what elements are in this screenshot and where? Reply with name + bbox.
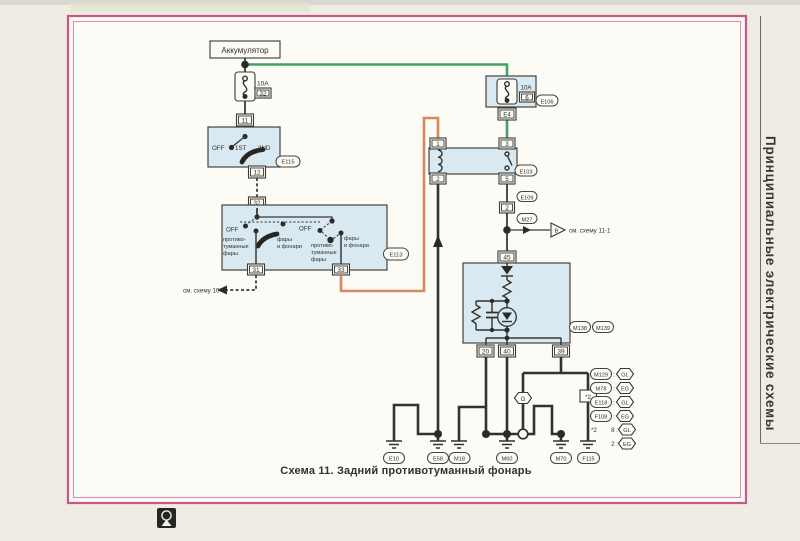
connector-11: 11 (237, 114, 254, 126)
switch-pos-1st: 1ST (235, 145, 247, 152)
junction-dot (434, 430, 442, 438)
svg-text::: : (613, 399, 615, 406)
svg-text:фары: фары (311, 257, 326, 263)
diagram-caption: Схема 11. Задний противотуманный фонарь (280, 465, 531, 477)
svg-text:20: 20 (482, 349, 490, 356)
junction-dot (557, 430, 565, 438)
svg-text:M129: M129 (594, 372, 608, 378)
svg-text:GL: GL (621, 372, 628, 378)
ground-id: E10 (389, 456, 399, 462)
connector-20: 20 (477, 345, 494, 357)
svg-text:GL: GL (621, 400, 628, 406)
relay-pin-3: 3 (499, 138, 515, 149)
svg-text:противо-: противо- (311, 243, 334, 249)
svg-text:E4: E4 (503, 112, 511, 119)
fuse-10a-6: 10A 6 (486, 76, 536, 107)
svg-text::: : (613, 413, 615, 420)
light-switch-e115: OFF 1ST 2ND (208, 127, 280, 167)
scanned-manual-page: Принципиальные электрические схемы Аккум… (0, 0, 800, 541)
connector-40: 40 (499, 345, 516, 357)
see-diagram-11-1-note: см. схему 11-1 (569, 228, 611, 235)
ground-id: M18 (454, 456, 465, 462)
connector-39: 39 (553, 345, 570, 357)
connector-2: 2 (500, 202, 515, 213)
junction-dot (482, 430, 490, 438)
svg-text:33: 33 (337, 267, 345, 274)
svg-text:и фонари: и фонари (277, 244, 302, 250)
connector-e4: E4 (498, 108, 516, 120)
battery: Аккумулятор (210, 41, 280, 58)
ground-id: M70 (556, 456, 567, 462)
svg-text:2 :: 2 : (611, 441, 618, 448)
svg-text:EG: EG (623, 442, 631, 448)
svg-text:GL: GL (623, 428, 630, 434)
connector-33: 33 (333, 264, 350, 275)
page-paper (68, 16, 746, 503)
svg-text:45: 45 (503, 255, 511, 262)
battery-label: Аккумулятор (221, 46, 269, 55)
light-switch-id: E115 (281, 160, 294, 166)
relay-id: E103 (519, 170, 532, 176)
relay-pin-5: 5 (499, 173, 515, 184)
connector-45: 45 (498, 251, 516, 263)
svg-text:40: 40 (503, 349, 511, 356)
svg-text:фары: фары (344, 236, 359, 242)
svg-text:M78: M78 (596, 386, 607, 392)
legend-footnote-star: *2 (591, 427, 597, 434)
connector-12: 12 (249, 166, 266, 178)
connector-id-m27: M27 (522, 217, 533, 223)
svg-text:3: 3 (505, 141, 509, 148)
svg-text:EG: EG (621, 414, 629, 420)
svg-text:12: 12 (253, 170, 261, 177)
svg-text:туманные: туманные (223, 244, 249, 250)
svg-text:6: 6 (525, 94, 529, 101)
connector-31: 31 (248, 264, 265, 275)
joint-connector-label: G (521, 396, 526, 403)
ground-id: M60 (502, 456, 513, 462)
scan-tint (70, 3, 310, 12)
svg-text::: : (613, 371, 615, 378)
switch-pos-off: OFF (212, 145, 225, 152)
fuse-right-id: E106 (540, 100, 553, 106)
rear-fog-lamp-unit (463, 263, 570, 345)
publisher-logo-icon (157, 508, 176, 528)
sidebar-title: Принципиальные электрические схемы (763, 136, 778, 431)
lamp-id-m139: M139 (596, 326, 610, 332)
svg-text:EG: EG (621, 386, 629, 392)
fuse-amp-label: 10A (521, 85, 533, 92)
svg-text:2: 2 (505, 205, 509, 212)
junction-dot (503, 430, 511, 438)
connector-id-e109: E109 (520, 195, 533, 201)
svg-text:39: 39 (557, 349, 565, 356)
svg-text:и фонари: и фонари (344, 243, 369, 249)
svg-text:F108: F108 (595, 414, 608, 420)
lamp-id-m138: M138 (573, 326, 587, 332)
svg-text:2: 2 (436, 176, 440, 183)
svg-text:11: 11 (242, 118, 249, 125)
fuse-id-label: 32 (260, 90, 267, 97)
svg-text:фары: фары (223, 251, 238, 257)
fog-switch-e113: OFF противо- туманные фары фары и фонари… (222, 205, 387, 270)
ground-id: F115 (582, 456, 594, 462)
svg-text:1: 1 (436, 141, 440, 148)
open-junction-circle (518, 429, 528, 439)
svg-text:туманные: туманные (311, 250, 337, 256)
svg-text:E118: E118 (595, 400, 608, 406)
svg-text::: : (613, 385, 615, 392)
fog-left-off: OFF (226, 227, 239, 234)
branch-letter: B (555, 228, 559, 234)
fog-switch-id: E113 (389, 253, 402, 259)
fuse-amp-label: 10A (257, 81, 269, 88)
svg-text:5: 5 (505, 176, 509, 183)
svg-text:8 :: 8 : (611, 427, 618, 434)
svg-text:противо-: противо- (223, 237, 246, 243)
relay-pin-1: 1 (430, 138, 446, 149)
see-diagram-10-note: см. схему 10 (183, 288, 220, 295)
relay-pin-2: 2 (430, 173, 446, 184)
svg-text:фары: фары (277, 237, 292, 243)
svg-text:31: 31 (252, 267, 260, 274)
ground-id: E58 (433, 456, 443, 462)
fog-right-off: OFF (299, 226, 312, 233)
junction-dot (241, 61, 249, 69)
